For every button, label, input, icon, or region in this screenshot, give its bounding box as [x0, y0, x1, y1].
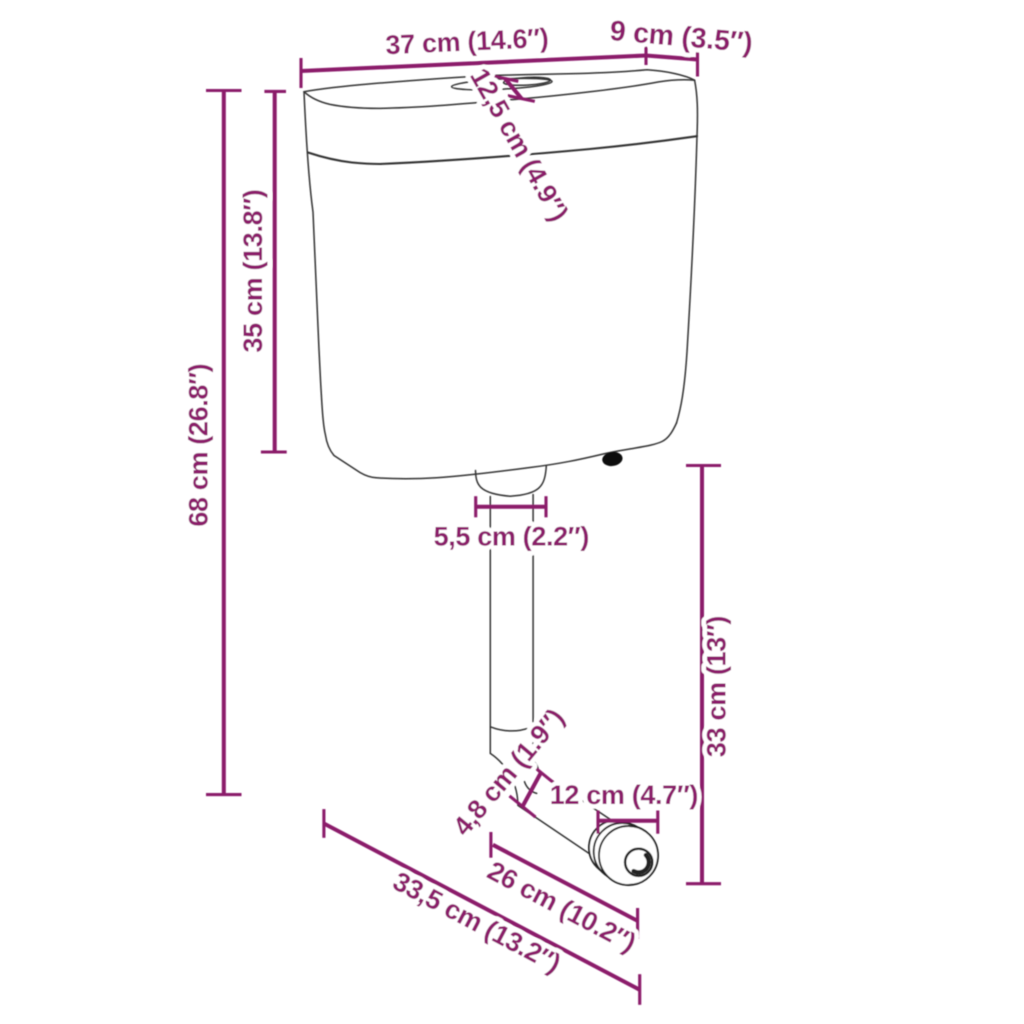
svg-text:33 cm (13″): 33 cm (13″) — [702, 616, 732, 757]
svg-text:68 cm (26.8″): 68 cm (26.8″) — [184, 364, 214, 527]
svg-text:5,5 cm (2.2″): 5,5 cm (2.2″) — [434, 522, 589, 552]
svg-text:12 cm (4.7″): 12 cm (4.7″) — [550, 780, 698, 810]
svg-text:35 cm (13.8″): 35 cm (13.8″) — [238, 190, 268, 353]
